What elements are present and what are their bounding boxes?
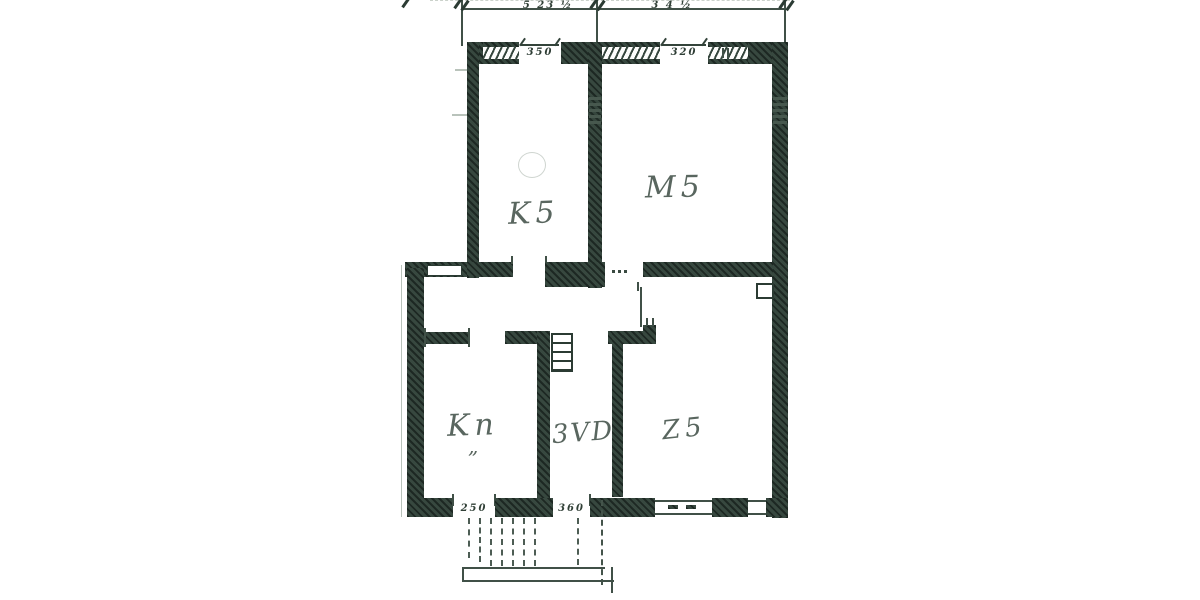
- wall-k5-m5-divider: [588, 42, 602, 288]
- extension-tick: [455, 69, 467, 71]
- room-label-m5: M5: [645, 169, 705, 205]
- top-wall-inner-face: [467, 59, 788, 64]
- door-jamb-tick: [646, 318, 648, 326]
- extension-line-right: [784, 0, 786, 42]
- window-mullion-mark: [727, 48, 729, 58]
- flue-patch-right-wall: [773, 96, 787, 124]
- overall-dimension-right: 3 4 ½: [646, 0, 698, 11]
- window-mullion-mark: [722, 48, 724, 58]
- overall-dimension-left: 5 23 ½: [516, 0, 580, 11]
- stair-landing-line: [462, 567, 605, 569]
- room-label-sz: Z5: [661, 412, 709, 446]
- stair-landing-line: [463, 580, 614, 582]
- corridor-opening-panel: [427, 265, 462, 276]
- stair-tread-line: [479, 518, 481, 562]
- stair-tread-line: [468, 518, 470, 558]
- window-k5: [483, 47, 519, 59]
- wall-kueche-bad-divider: [537, 331, 550, 500]
- room-label-bad: 3VD: [551, 416, 615, 450]
- window-m5-left: [602, 47, 660, 59]
- window-dimension-box-right: 320: [660, 40, 708, 66]
- stair-tread-line: [501, 518, 503, 566]
- bottom-window-dash: [668, 505, 678, 509]
- bottom-wall-block-4: [712, 498, 748, 517]
- stair-dashdot-line: [601, 500, 603, 585]
- door-jamb-tick: [637, 282, 639, 291]
- sz-door-jamb-cap: [643, 325, 656, 344]
- door-jamb-tick: [652, 318, 654, 326]
- stair-edge-line: [611, 567, 613, 593]
- stair-edge-line: [462, 567, 464, 582]
- extension-tick: [452, 114, 467, 116]
- dimension-line: [521, 44, 560, 46]
- bottom-window-line: [655, 500, 712, 502]
- stair-tread-line: [490, 518, 492, 566]
- door-dimension-bottom-left: 250: [453, 503, 495, 514]
- corridor-wall-under-k5: [467, 262, 513, 277]
- stair-tread-line: [523, 518, 525, 566]
- bottom-wall-corner-left: [407, 498, 453, 517]
- dimension-tick: [401, 0, 410, 8]
- bottom-window-line: [655, 513, 712, 515]
- window-dimension-box-left: 350: [519, 40, 561, 66]
- pencil-circle-mark: [518, 152, 546, 178]
- room-label-k5: K5: [507, 195, 560, 232]
- door-jamb-tick: [511, 256, 513, 264]
- tiny-annotation-scribble: [612, 270, 628, 273]
- flue-shaft-symbol: [551, 333, 573, 372]
- wall-end-tick: [424, 328, 426, 347]
- corridor-wall-right: [643, 262, 773, 277]
- pencil-guide-line: [401, 265, 402, 517]
- dimension-line: [662, 44, 706, 46]
- wall-k5-left: [467, 42, 479, 278]
- bottom-wall-block-3: [590, 498, 655, 517]
- room-label-kueche-marks: „: [468, 434, 483, 458]
- wall-end-tick: [468, 328, 470, 347]
- stair-tread-line: [534, 518, 536, 566]
- bottom-wall-block-2: [495, 498, 553, 517]
- window-dimension-text-left: 350: [527, 47, 554, 58]
- flue-patch-divider: [589, 96, 601, 124]
- kueche-top-wall: [425, 332, 470, 344]
- window-dimension-text-right: 320: [671, 47, 698, 58]
- stair-tread-line: [577, 518, 579, 565]
- floor-plan-scan: 5 23 ½ 3 4 ½ 350 320: [0, 0, 1200, 600]
- wall-left-exterior: [407, 268, 424, 517]
- dimension-chain-line: [462, 8, 786, 10]
- wall-niche: [756, 283, 774, 299]
- stair-tread-line: [512, 518, 514, 566]
- door-dimension-bottom-middle: 360: [553, 503, 590, 514]
- scan-edge-dashes: [430, 0, 790, 2]
- bottom-window-line: [748, 513, 768, 515]
- door-leaf-line: [640, 287, 642, 327]
- wall-bad-sz-divider: [612, 331, 623, 497]
- bottom-window-dash: [686, 505, 696, 509]
- bottom-wall-corner-right: [766, 498, 788, 517]
- corridor-wall-center-block: [545, 262, 605, 287]
- bottom-window-line: [748, 500, 768, 502]
